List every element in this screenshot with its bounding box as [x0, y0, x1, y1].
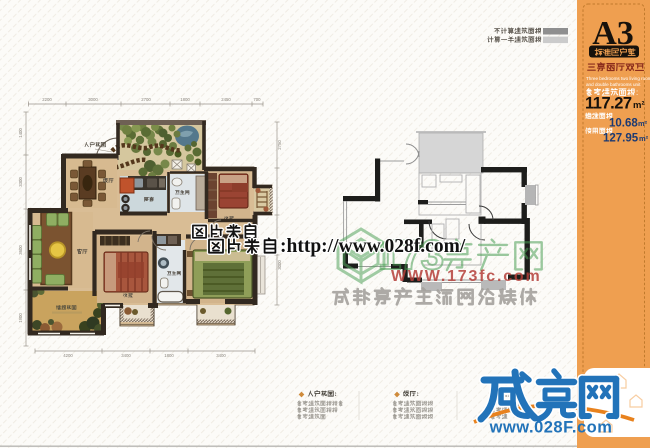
svg-text:www.028F.com: www.028F.com — [489, 419, 613, 437]
svg-text::: : — [636, 88, 638, 97]
svg-text:Three bedrooms two living room: Three bedrooms two living rooms — [586, 76, 650, 81]
svg-text:3300: 3300 — [18, 177, 23, 187]
svg-text:3400: 3400 — [121, 353, 131, 358]
svg-text:m²: m² — [633, 100, 645, 111]
svg-text::http://www.028f.com/: :http://www.028f.com/ — [280, 236, 466, 257]
svg-text:3400: 3400 — [216, 353, 226, 358]
svg-text:3600: 3600 — [18, 245, 23, 255]
svg-text:127.95: 127.95 — [603, 133, 639, 145]
svg-text:2750: 2750 — [277, 140, 282, 150]
svg-text:2700: 2700 — [141, 97, 151, 102]
svg-text:m²: m² — [639, 134, 649, 143]
svg-text:3000: 3000 — [277, 260, 282, 270]
svg-text:1800: 1800 — [180, 97, 190, 102]
svg-text:and double bathrooms unit: and double bathrooms unit — [586, 82, 641, 87]
svg-text:1900: 1900 — [18, 313, 23, 323]
svg-text:700: 700 — [253, 97, 261, 102]
svg-text:10.68: 10.68 — [609, 118, 638, 130]
svg-text:m²: m² — [638, 119, 648, 128]
svg-text:4200: 4200 — [63, 353, 73, 358]
svg-text:1800: 1800 — [164, 353, 174, 358]
svg-text:WWW.173fc.com: WWW.173fc.com — [391, 268, 542, 285]
svg-text:1400: 1400 — [18, 128, 23, 138]
svg-text:2200: 2200 — [42, 97, 52, 102]
svg-text:3000: 3000 — [88, 97, 98, 102]
svg-text:117.27: 117.27 — [585, 95, 632, 113]
svg-text:2450: 2450 — [221, 97, 231, 102]
